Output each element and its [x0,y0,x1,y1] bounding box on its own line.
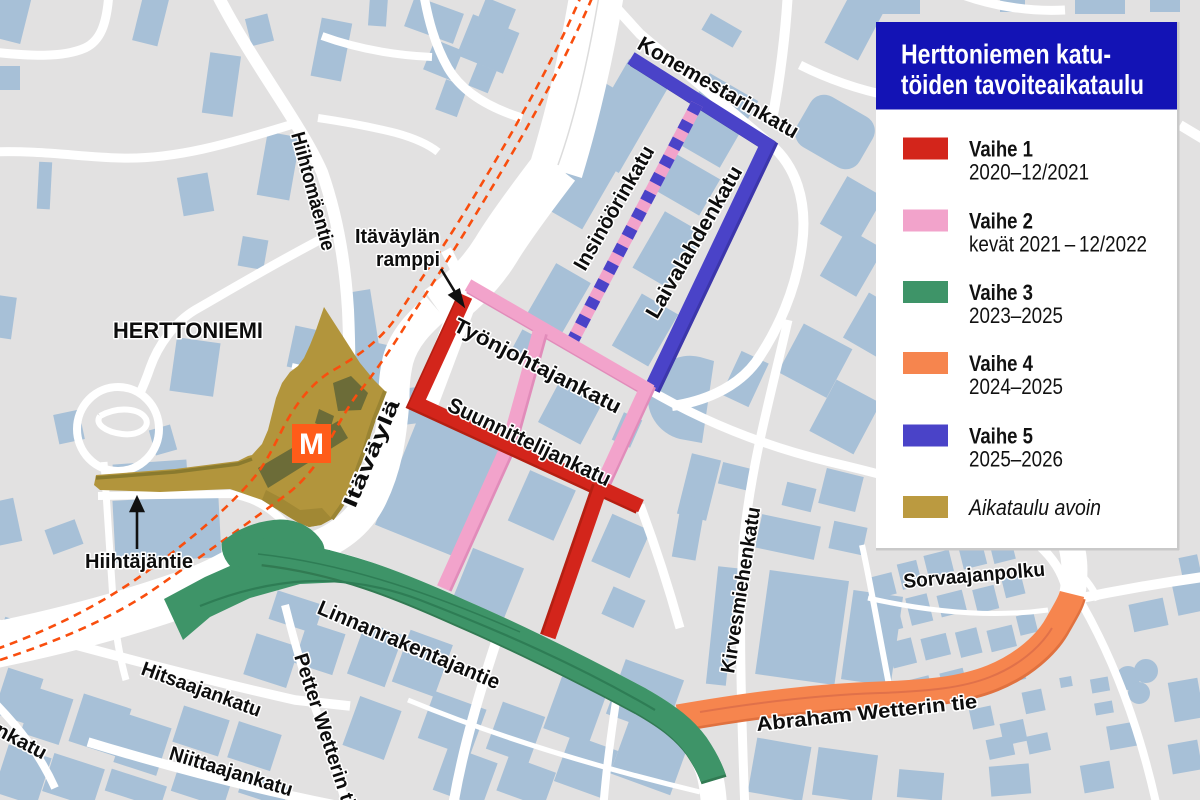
svg-text:Vaihe 2: Vaihe 2 [969,209,1033,234]
svg-text:M: M [299,428,324,461]
svg-text:töiden tavoiteaikataulu: töiden tavoiteaikataulu [901,69,1144,100]
svg-text:Vaihe 4: Vaihe 4 [969,351,1034,376]
svg-text:ramppi: ramppi [376,249,440,271]
svg-text:Itäväylän: Itäväylän [355,226,440,248]
svg-text:2025–2026: 2025–2026 [969,447,1063,472]
svg-text:2020–12/2021: 2020–12/2021 [969,160,1089,185]
svg-text:Vaihe 1: Vaihe 1 [969,137,1033,162]
svg-text:Aikataulu avoin: Aikataulu avoin [967,495,1101,520]
svg-text:Hiihtäjäntie: Hiihtäjäntie [85,551,193,573]
svg-text:kevät 2021 – 12/2022: kevät 2021 – 12/2022 [969,232,1147,257]
svg-text:2024–2025: 2024–2025 [969,374,1063,399]
svg-text:HERTTONIEMI: HERTTONIEMI [113,318,263,343]
svg-text:2023–2025: 2023–2025 [969,303,1063,328]
svg-text:Herttoniemen katu-: Herttoniemen katu- [901,39,1111,70]
svg-text:Vaihe 5: Vaihe 5 [969,424,1033,449]
svg-text:Vaihe 3: Vaihe 3 [969,280,1033,305]
